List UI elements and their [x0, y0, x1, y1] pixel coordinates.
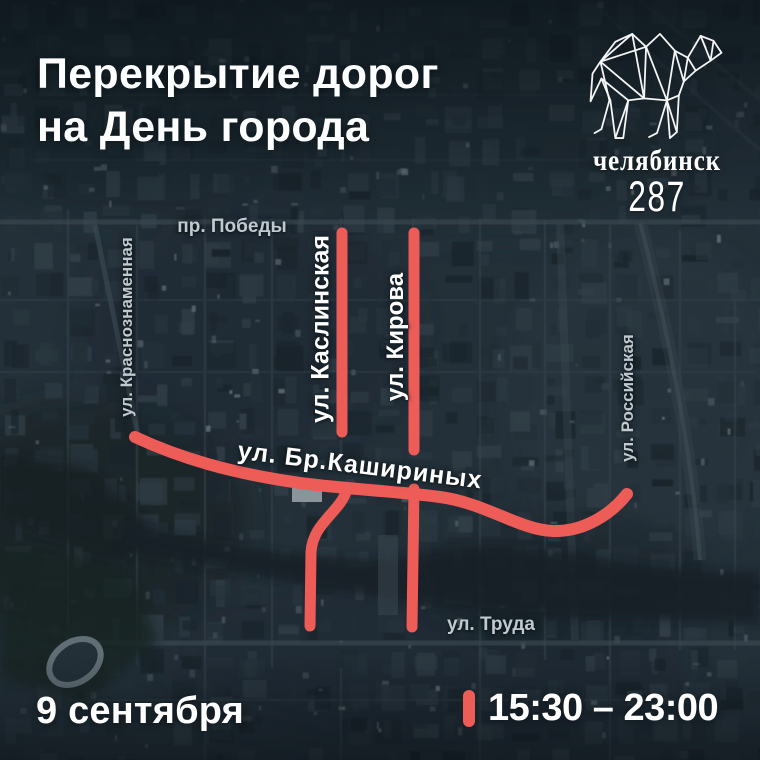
street-label-kirova: ул. Кирова — [382, 273, 410, 401]
event-date: 9 сентября — [36, 690, 244, 733]
closure-line-kaslinskaya-lower — [310, 489, 347, 626]
street-label-rossiyskaya: ул. Российская — [618, 334, 638, 462]
street-label-kaslinskaya: ул. Каслинская — [307, 235, 336, 423]
closure-line-kirova-lower — [412, 489, 414, 627]
poster-title-line2: на День города — [37, 101, 439, 154]
event-time-block: 15:30 – 23:00 — [463, 687, 718, 730]
infographic-poster: пр. Победы ул. Краснознаменная ул. Касли… — [0, 0, 760, 760]
logo-city-name: челябинск — [590, 146, 724, 176]
poster-title: Перекрытие дорог на День города — [37, 48, 439, 154]
logo-anniversary-number: 287 — [598, 177, 716, 217]
poster-title-line1: Перекрытие дорог — [37, 48, 439, 101]
camel-logo-icon — [579, 22, 735, 146]
street-label-krasnoznamennaya: ул. Краснознаменная — [117, 237, 137, 417]
street-label-pobedy: пр. Победы — [177, 216, 287, 238]
event-time-range: 15:30 – 23:00 — [488, 687, 718, 730]
city-logo: челябинск 287 — [577, 22, 737, 217]
closure-line-kashirinykh — [135, 437, 627, 531]
time-accent-bar — [463, 690, 475, 727]
street-label-truda: ул. Труда — [447, 614, 535, 636]
